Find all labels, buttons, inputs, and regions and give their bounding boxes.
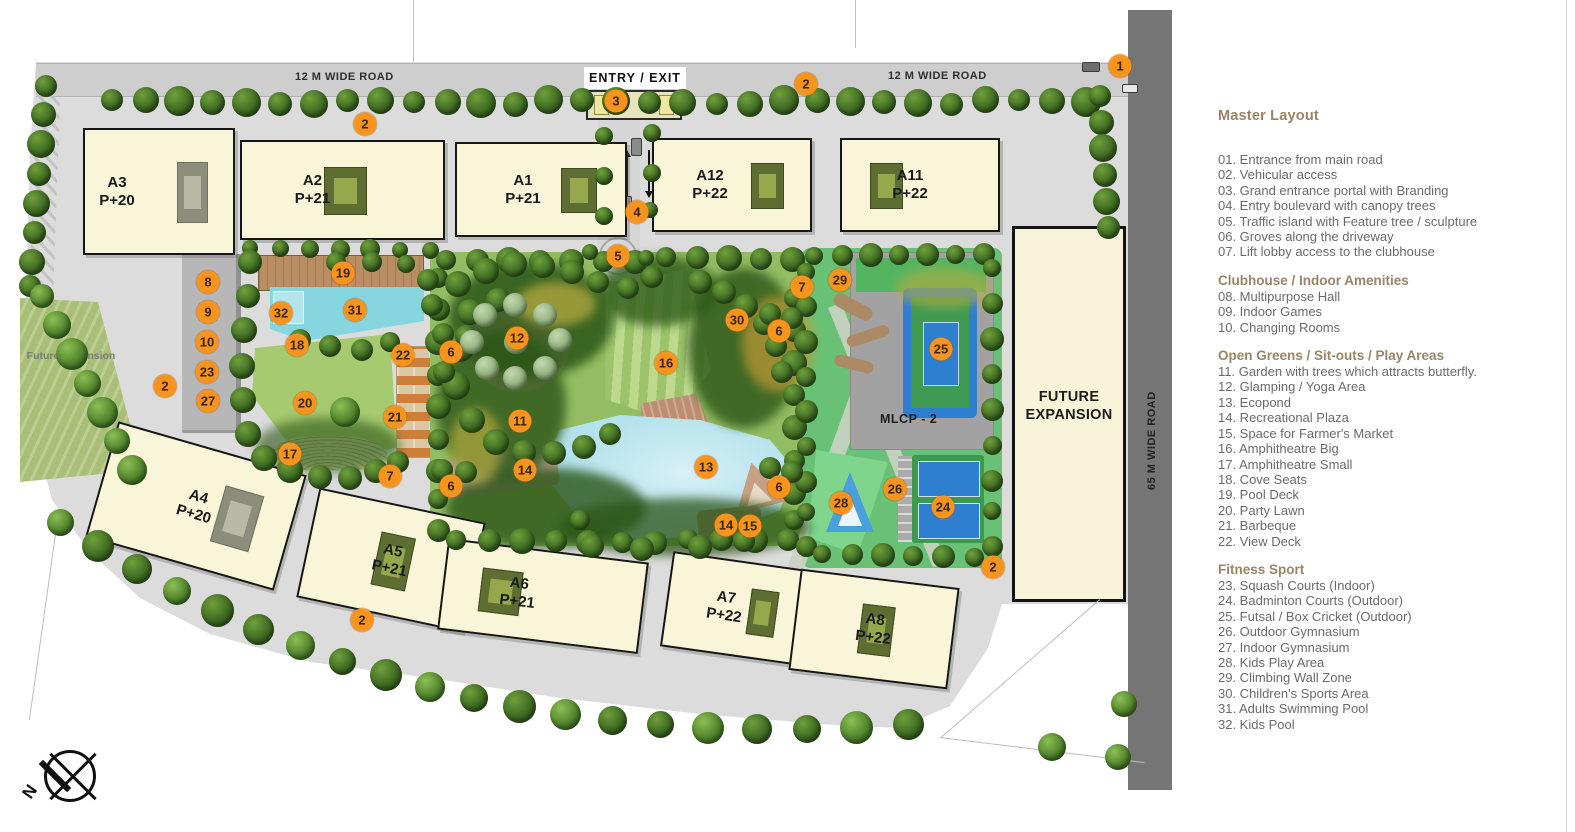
legend-item: 25. Futsal / Box Cricket (Outdoor) bbox=[1218, 609, 1560, 624]
tree-icon bbox=[163, 577, 191, 605]
tree-icon bbox=[1038, 733, 1066, 761]
tree-icon bbox=[243, 614, 274, 645]
legend-item: 10. Changing Rooms bbox=[1218, 320, 1560, 335]
tree-icon bbox=[428, 429, 449, 450]
plan-marker-16: 16 bbox=[655, 352, 678, 375]
tree-icon bbox=[421, 294, 443, 316]
tree-icon bbox=[647, 711, 674, 738]
tree-icon bbox=[417, 269, 439, 291]
tree-icon bbox=[35, 75, 57, 97]
tree-icon bbox=[813, 545, 831, 563]
building-floors: P+21 bbox=[212, 190, 413, 208]
tree-icon bbox=[769, 85, 799, 115]
tree-icon bbox=[433, 361, 455, 383]
tree-icon bbox=[794, 330, 818, 354]
plan-marker-5: 5 bbox=[607, 245, 630, 268]
tree-icon bbox=[319, 335, 341, 357]
compass-needle bbox=[39, 760, 72, 793]
tree-icon bbox=[503, 690, 536, 723]
tree-icon bbox=[599, 423, 621, 445]
plan-marker-14: 14 bbox=[715, 514, 738, 537]
tree-icon bbox=[972, 86, 999, 113]
building-a8: A8P+22 bbox=[788, 569, 959, 690]
plan-marker-27: 27 bbox=[197, 390, 220, 413]
tree-icon bbox=[251, 445, 277, 471]
legend-item: 24. Badminton Courts (Outdoor) bbox=[1218, 593, 1560, 608]
north-compass-icon bbox=[44, 750, 96, 802]
legend-item: 01. Entrance from main road bbox=[1218, 152, 1560, 167]
tree-icon bbox=[30, 284, 54, 308]
plan-marker-7: 7 bbox=[791, 276, 814, 299]
plan-marker-13: 13 bbox=[695, 456, 718, 479]
tree-icon bbox=[268, 92, 292, 116]
legend-section-heading: Fitness Sport bbox=[1218, 562, 1560, 577]
plan-marker-29: 29 bbox=[829, 269, 852, 292]
tree-icon bbox=[643, 164, 661, 182]
building-a11: A11P+22 bbox=[840, 138, 1000, 232]
tree-icon bbox=[580, 534, 604, 558]
plan-marker-26: 26 bbox=[884, 478, 907, 501]
plan-marker-17: 17 bbox=[279, 443, 302, 466]
tree-icon bbox=[893, 709, 924, 740]
tree-icon bbox=[286, 631, 315, 660]
legend-item: 29. Climbing Wall Zone bbox=[1218, 670, 1560, 685]
tree-icon bbox=[478, 529, 501, 552]
tree-icon bbox=[595, 207, 613, 225]
plan-marker-15: 15 bbox=[739, 515, 762, 538]
road-label-left: 12 M WIDE ROAD bbox=[295, 71, 394, 83]
tree-icon bbox=[300, 90, 328, 118]
legend-item: 30. Children's Sports Area bbox=[1218, 686, 1560, 701]
legend-item: 18. Cove Seats bbox=[1218, 472, 1560, 487]
building-label: A11P+22 bbox=[832, 167, 988, 203]
legend-item: 15. Space for Farmer's Market bbox=[1218, 426, 1560, 441]
legend-item: 23. Squash Courts (Indoor) bbox=[1218, 578, 1560, 593]
tree-icon bbox=[1093, 163, 1117, 187]
tree-icon bbox=[638, 250, 654, 266]
legend-title: Master Layout bbox=[1218, 108, 1560, 124]
tree-icon bbox=[1093, 188, 1120, 215]
tree-icon bbox=[1089, 110, 1114, 135]
building-label: A7P+22 bbox=[658, 580, 792, 634]
legend-item: 26. Outdoor Gymnasium bbox=[1218, 624, 1560, 639]
tree-icon bbox=[336, 89, 359, 112]
tree-icon bbox=[797, 503, 815, 521]
plan-marker-6: 6 bbox=[440, 341, 463, 364]
plan-marker-24: 24 bbox=[932, 496, 955, 519]
legend-item: 04. Entry boulevard with canopy trees bbox=[1218, 198, 1560, 213]
plan-marker-6: 6 bbox=[768, 476, 791, 499]
tree-icon bbox=[330, 397, 360, 427]
car-icon bbox=[631, 138, 642, 156]
tree-icon bbox=[871, 543, 895, 567]
tree-icon bbox=[23, 221, 46, 244]
legend-item: 19. Pool Deck bbox=[1218, 487, 1560, 502]
legend-item: 20. Party Lawn bbox=[1218, 503, 1560, 518]
tree-icon bbox=[796, 367, 816, 387]
tree-icon bbox=[231, 317, 257, 343]
tree-icon bbox=[542, 441, 566, 465]
tree-icon bbox=[351, 339, 373, 361]
legend-item: 02. Vehicular access bbox=[1218, 167, 1560, 182]
tree-icon bbox=[74, 370, 101, 397]
plan-marker-3: 3 bbox=[605, 90, 628, 113]
tree-icon bbox=[329, 648, 356, 675]
tree-icon bbox=[238, 250, 262, 274]
plan-marker-2: 2 bbox=[154, 375, 177, 398]
tree-icon bbox=[308, 465, 332, 489]
plan-marker-7: 7 bbox=[379, 465, 402, 488]
building-a7: A7P+22 bbox=[660, 551, 806, 665]
tree-icon bbox=[712, 280, 736, 304]
tree-icon bbox=[101, 89, 123, 111]
survey-line bbox=[413, 0, 414, 63]
tree-icon bbox=[771, 361, 793, 383]
tree-icon bbox=[560, 260, 584, 284]
tree-icon bbox=[692, 712, 724, 744]
future-expansion-label: FUTURE EXPANSION bbox=[1012, 388, 1126, 424]
tree-icon bbox=[572, 435, 596, 459]
tree-icon bbox=[842, 544, 863, 565]
plan-marker-11: 11 bbox=[509, 410, 532, 433]
tree-icon bbox=[983, 436, 1002, 455]
legend-sections: 01. Entrance from main road02. Vehicular… bbox=[1218, 152, 1560, 732]
tree-icon bbox=[503, 293, 527, 317]
legend-item: 14. Recreational Plaza bbox=[1218, 410, 1560, 425]
plan-marker-30: 30 bbox=[726, 309, 749, 332]
tree-icon bbox=[1111, 691, 1137, 717]
tree-icon bbox=[403, 91, 425, 113]
legend-item: 21. Barbeque bbox=[1218, 518, 1560, 533]
boundary-line bbox=[29, 520, 58, 720]
tree-icon bbox=[473, 258, 499, 284]
tree-icon bbox=[43, 311, 71, 339]
plan-marker-23: 23 bbox=[196, 361, 219, 384]
tree-icon bbox=[236, 284, 260, 308]
plan-marker-2: 2 bbox=[351, 609, 374, 632]
tree-icon bbox=[630, 537, 654, 561]
legend-item: 03. Grand entrance portal with Branding bbox=[1218, 183, 1560, 198]
tree-icon bbox=[550, 699, 581, 730]
legend-item: 09. Indoor Games bbox=[1218, 304, 1560, 319]
tree-icon bbox=[840, 711, 873, 744]
right-road-label: 65 M WIDE ROAD bbox=[1146, 330, 1158, 490]
legend-item: 05. Traffic island with Feature tree / s… bbox=[1218, 214, 1560, 229]
survey-line bbox=[855, 0, 856, 48]
legend-item: 07. Lift lobby access to the clubhouse bbox=[1218, 244, 1560, 259]
building-a12: A12P+22 bbox=[652, 138, 812, 232]
building-label: A1P+21 bbox=[439, 172, 607, 208]
car-icon bbox=[1082, 62, 1100, 72]
tree-icon bbox=[232, 88, 261, 117]
entrance-portal bbox=[586, 90, 682, 120]
legend-item: 22. View Deck bbox=[1218, 534, 1560, 549]
plan-marker-31: 31 bbox=[344, 299, 367, 322]
plan-marker-4: 4 bbox=[626, 201, 649, 224]
building-name: A2 bbox=[212, 172, 413, 190]
tree-icon bbox=[272, 240, 289, 257]
legend-item: 11. Garden with trees which attracts but… bbox=[1218, 364, 1560, 379]
tree-icon bbox=[27, 162, 51, 186]
north-label: N bbox=[18, 781, 41, 803]
entry-exit-label: ENTRY / EXIT bbox=[583, 66, 687, 90]
tree-icon bbox=[56, 338, 88, 370]
tree-icon bbox=[426, 394, 451, 419]
legend-item: 12. Glamping / Yoga Area bbox=[1218, 379, 1560, 394]
plan-marker-10: 10 bbox=[196, 331, 219, 354]
tree-icon bbox=[595, 167, 613, 185]
building-label: A3P+20 bbox=[43, 174, 191, 210]
tree-icon bbox=[940, 93, 963, 116]
tree-icon bbox=[980, 327, 1004, 351]
plan-marker-2: 2 bbox=[354, 113, 377, 136]
tree-icon bbox=[570, 510, 590, 530]
tree-icon bbox=[459, 407, 485, 433]
tree-icon bbox=[473, 303, 497, 327]
car-icon bbox=[1122, 84, 1138, 93]
plan-marker-32: 32 bbox=[270, 302, 293, 325]
tree-icon bbox=[805, 247, 823, 265]
tree-icon bbox=[981, 398, 1004, 421]
tree-icon bbox=[19, 249, 45, 275]
tree-icon bbox=[534, 85, 563, 114]
tree-icon bbox=[832, 245, 853, 266]
plan-marker-19: 19 bbox=[332, 262, 355, 285]
tree-icon bbox=[706, 93, 728, 115]
plan-marker-12: 12 bbox=[506, 327, 529, 350]
tree-icon bbox=[545, 530, 567, 552]
tree-icon bbox=[598, 706, 627, 735]
plan-marker-6: 6 bbox=[768, 320, 791, 343]
building-floors: P+20 bbox=[43, 192, 191, 210]
tree-icon bbox=[981, 470, 1003, 492]
tree-icon bbox=[436, 250, 456, 270]
master-layout-plan: 65 M WIDE ROAD 12 M WIDE ROAD 12 M WIDE … bbox=[0, 0, 1575, 832]
tree-icon bbox=[47, 509, 74, 536]
tree-icon bbox=[617, 277, 639, 299]
tree-icon bbox=[587, 271, 609, 293]
tree-icon bbox=[475, 356, 499, 380]
tree-icon bbox=[795, 400, 818, 423]
tree-icon bbox=[1105, 744, 1131, 770]
building-a2: A2P+21 bbox=[240, 140, 445, 240]
tree-icon bbox=[643, 124, 661, 142]
plan-marker-2: 2 bbox=[982, 556, 1005, 579]
tree-icon bbox=[1089, 85, 1111, 107]
tree-icon bbox=[750, 248, 772, 270]
tree-icon bbox=[531, 254, 555, 278]
legend-item: 08. Multipurpose Hall bbox=[1218, 289, 1560, 304]
tree-icon bbox=[582, 244, 598, 260]
building-floors: P+21 bbox=[439, 190, 607, 208]
road-label-right: 12 M WIDE ROAD bbox=[888, 70, 987, 82]
tree-icon bbox=[503, 366, 527, 390]
building-floors: P+22 bbox=[832, 185, 988, 203]
tree-icon bbox=[688, 535, 712, 559]
tree-icon bbox=[501, 251, 527, 277]
tree-icon bbox=[230, 387, 256, 413]
legend-item: 28. Kids Play Area bbox=[1218, 655, 1560, 670]
building-floors: P+22 bbox=[632, 185, 788, 203]
tree-icon bbox=[200, 90, 225, 115]
tree-icon bbox=[859, 243, 883, 267]
tree-icon bbox=[983, 259, 1001, 277]
plan-marker-8: 8 bbox=[197, 271, 220, 294]
tree-icon bbox=[446, 530, 466, 550]
tree-icon bbox=[415, 672, 445, 702]
tree-icon bbox=[503, 92, 528, 117]
tree-icon bbox=[509, 528, 535, 554]
plan-marker-6: 6 bbox=[440, 475, 463, 498]
tree-icon bbox=[533, 356, 557, 380]
tree-icon bbox=[133, 87, 159, 113]
tree-icon bbox=[460, 684, 488, 712]
plan-marker-22: 22 bbox=[392, 344, 415, 367]
tree-icon bbox=[362, 252, 382, 272]
tree-icon bbox=[982, 536, 1003, 557]
plan-marker-21: 21 bbox=[384, 406, 407, 429]
tree-icon bbox=[688, 270, 712, 294]
tree-icon bbox=[595, 127, 613, 145]
plan-marker-28: 28 bbox=[830, 492, 853, 515]
tree-icon bbox=[742, 714, 772, 744]
tree-icon bbox=[797, 437, 816, 456]
tree-icon bbox=[1097, 216, 1120, 239]
tree-icon bbox=[889, 245, 909, 265]
badminton-court-1 bbox=[918, 461, 980, 497]
tree-icon bbox=[982, 293, 1003, 314]
legend-item: 17. Amphitheatre Small bbox=[1218, 457, 1560, 472]
tree-icon bbox=[397, 255, 415, 273]
plan-marker-25: 25 bbox=[930, 338, 953, 361]
tree-icon bbox=[445, 271, 471, 297]
legend-item: 13. Ecopond bbox=[1218, 395, 1560, 410]
plan-marker-14: 14 bbox=[514, 459, 537, 482]
plan-marker-9: 9 bbox=[197, 301, 220, 324]
tree-icon bbox=[23, 190, 50, 217]
legend-item: 32. Kids Pool bbox=[1218, 717, 1560, 732]
tree-icon bbox=[229, 353, 255, 379]
building-name: A3 bbox=[43, 174, 191, 192]
tree-icon bbox=[641, 266, 663, 288]
legend-item: 31. Adults Swimming Pool bbox=[1218, 701, 1560, 716]
tree-icon bbox=[916, 243, 939, 266]
tree-icon bbox=[235, 421, 261, 447]
legend-section-heading: Clubhouse / Indoor Amenities bbox=[1218, 273, 1560, 288]
legend-section-heading: Open Greens / Sit-outs / Play Areas bbox=[1218, 348, 1560, 363]
tree-mass bbox=[896, 268, 992, 308]
tree-icon bbox=[370, 659, 402, 691]
panel-edge-divider bbox=[1566, 0, 1567, 832]
tree-icon bbox=[793, 715, 821, 743]
tree-icon bbox=[301, 240, 319, 258]
building-label: A2P+21 bbox=[212, 172, 413, 208]
plan-marker-20: 20 bbox=[294, 392, 317, 415]
tree-icon bbox=[548, 328, 572, 352]
building-name: A1 bbox=[439, 172, 607, 190]
legend-item: 27. Indoor Gymnasium bbox=[1218, 640, 1560, 655]
legend-item: 16. Amphitheatre Big bbox=[1218, 441, 1560, 456]
tree-icon bbox=[483, 429, 509, 455]
legend-item: 06. Groves along the driveway bbox=[1218, 229, 1560, 244]
tree-icon bbox=[87, 397, 118, 428]
tree-icon bbox=[460, 330, 484, 354]
tree-icon bbox=[533, 303, 557, 327]
building-name: A11 bbox=[832, 167, 988, 185]
plan-marker-2: 2 bbox=[795, 73, 818, 96]
plan-marker-1: 1 bbox=[1109, 55, 1132, 78]
legend-panel: Master Layout 01. Entrance from main roa… bbox=[1218, 108, 1560, 732]
tree-icon bbox=[201, 594, 234, 627]
plan-marker-18: 18 bbox=[286, 334, 309, 357]
tree-icon bbox=[638, 91, 661, 114]
tree-icon bbox=[338, 466, 362, 490]
